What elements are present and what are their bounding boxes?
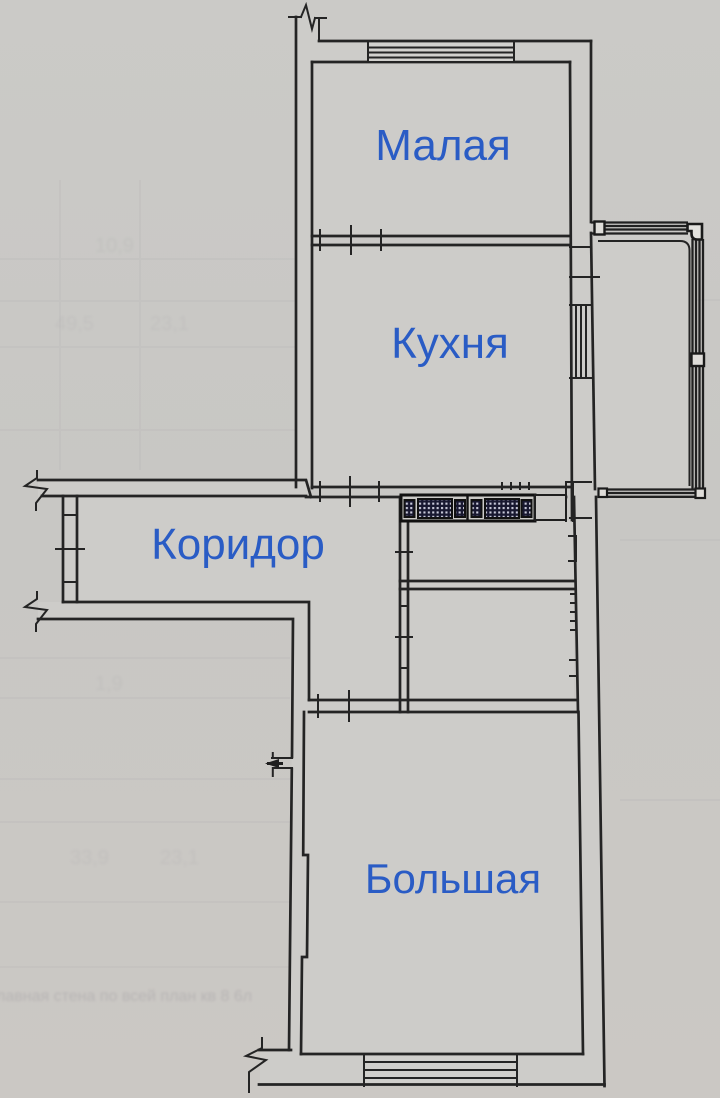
svg-text:23,1: 23,1: [150, 313, 189, 335]
svg-text:Малая: Малая: [375, 121, 511, 170]
svg-text:Большая: Большая: [365, 855, 541, 902]
svg-text:23,1: 23,1: [160, 847, 199, 869]
svg-text:10,9: 10,9: [95, 235, 134, 257]
svg-text:1,9: 1,9: [95, 673, 123, 695]
svg-text:33,9: 33,9: [70, 847, 109, 869]
svg-text:Коридор: Коридор: [151, 520, 325, 569]
svg-text:Кухня: Кухня: [391, 319, 509, 368]
svg-text:49,5: 49,5: [55, 313, 94, 335]
svg-text:лавная стена по всей план кв 8: лавная стена по всей план кв 8 6л: [0, 988, 252, 1005]
